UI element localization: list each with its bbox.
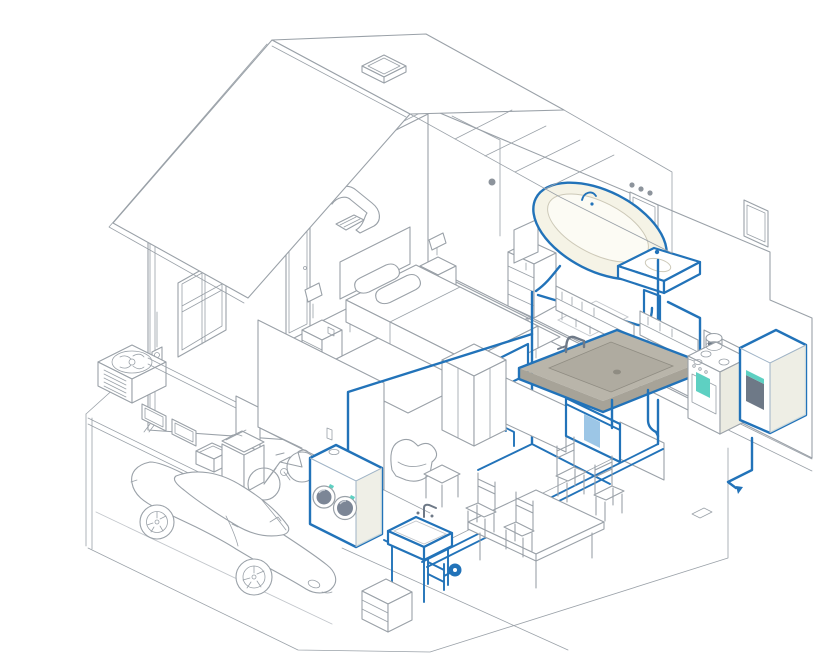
side-table xyxy=(424,465,460,507)
water-heater xyxy=(740,330,806,433)
wall-dot xyxy=(489,179,496,186)
recirculation-pump xyxy=(428,556,462,590)
dining-set xyxy=(466,437,624,588)
living-corner xyxy=(391,439,460,507)
isometric-house-diagram xyxy=(0,0,822,656)
garage xyxy=(131,430,336,595)
drawer-cabinet xyxy=(362,579,412,632)
wall-cabinet xyxy=(744,200,768,247)
dining-table xyxy=(468,490,604,588)
car-wheel-rear xyxy=(140,505,174,539)
house-cutaway-illustration xyxy=(0,0,822,656)
sink-faucet xyxy=(655,250,659,254)
water-heater-inlet xyxy=(728,438,752,494)
car-wheel-front xyxy=(236,559,272,595)
